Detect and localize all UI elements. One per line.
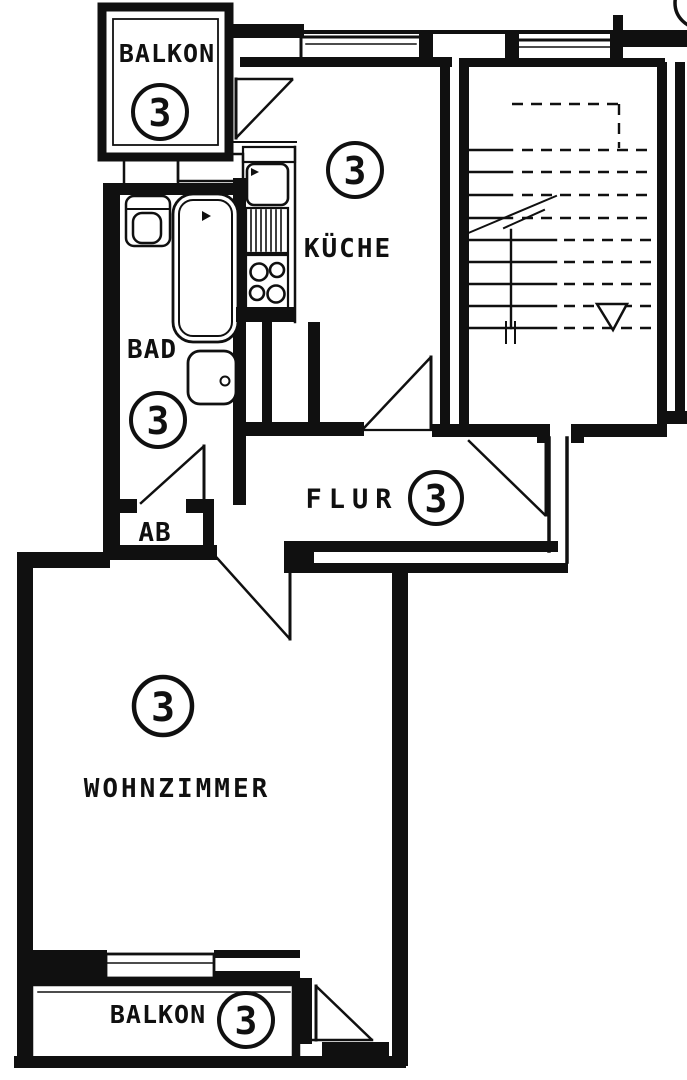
- wall-segment: [14, 1056, 406, 1068]
- window-wohnzimmer: [106, 954, 214, 978]
- wall-segment: [619, 32, 687, 47]
- unit-number: 3: [149, 91, 172, 135]
- room-wohnzimmer: 3 WOHNZIMMER: [17, 552, 408, 1066]
- counter-segment: [243, 147, 295, 162]
- wall-segment: [103, 183, 247, 195]
- exterior-top-wall: [232, 0, 687, 64]
- room-label-flur: FLUR: [305, 484, 398, 515]
- wall-segment: [236, 307, 296, 322]
- room-label-kueche: KÜCHE: [304, 231, 392, 264]
- floor-plan-page: BALKON 3 BAD: [0, 0, 687, 1080]
- door-swing-kitchen-balcony: [233, 79, 296, 142]
- stairs: [466, 104, 654, 343]
- wall-segment: [613, 15, 623, 32]
- unit-number: 3: [425, 477, 448, 521]
- neighbor-unit-circle-cropped: [675, 0, 687, 28]
- wall-segment: [578, 424, 666, 437]
- kitchen-counter: [236, 147, 296, 322]
- wall-segment: [432, 424, 544, 437]
- bathtub: [173, 194, 238, 342]
- kitchen-sink: [247, 164, 288, 205]
- washbasin: [188, 351, 236, 404]
- unit-number: 3: [151, 685, 175, 731]
- wall-segment: [103, 499, 137, 513]
- stair-break-line: [466, 196, 556, 234]
- wall-segment: [459, 62, 469, 437]
- wall-segment: [296, 978, 312, 1044]
- room-kueche: 3 KÜCHE: [236, 57, 452, 436]
- wall-segment: [440, 62, 450, 429]
- floor-plan-drawing: BALKON 3 BAD: [0, 0, 687, 1080]
- wall-segment: [459, 58, 665, 67]
- wall-segment: [17, 950, 107, 980]
- door-swing-bad: [141, 446, 204, 503]
- stair-direction-arrow-down: [597, 304, 627, 330]
- stairwell: [432, 58, 687, 515]
- room-bad: BAD 3: [103, 178, 247, 558]
- wall-segment: [232, 24, 304, 38]
- room-label-ab: AB: [138, 518, 171, 548]
- room-flur: FLUR 3: [284, 438, 568, 573]
- room-label-bad: BAD: [127, 335, 177, 365]
- door-swing-entrance: [469, 440, 546, 515]
- wall-segment: [308, 322, 320, 425]
- wall-segment: [657, 62, 667, 437]
- wall-segment: [675, 62, 685, 422]
- wall-segment: [240, 57, 452, 67]
- room-label-balkon-bottom: BALKON: [110, 1000, 206, 1029]
- room-balkon-bottom: BALKON 3: [14, 978, 406, 1068]
- wall-segment: [322, 1042, 389, 1058]
- wall-segment: [262, 322, 272, 425]
- wall-segment: [663, 411, 687, 424]
- room-label-wohnzimmer: WOHNZIMMER: [84, 774, 271, 804]
- room-balkon-top: BALKON 3: [102, 7, 229, 157]
- worktop-drainer: [246, 208, 288, 253]
- door-swing-kueche: [364, 357, 431, 428]
- unit-number: 3: [235, 999, 258, 1043]
- wall-segment: [298, 563, 568, 573]
- room-label-balkon-top: BALKON: [119, 39, 215, 68]
- wall-segment: [298, 541, 558, 552]
- wall-segment: [236, 422, 364, 436]
- door-swing-neighbor-balcony: [307, 986, 372, 1040]
- door-swing-wohnzimmer: [217, 556, 290, 639]
- wall-segment: [392, 563, 408, 1066]
- unit-number: 3: [344, 149, 367, 193]
- toilet: [126, 196, 170, 246]
- unit-number: 3: [147, 399, 170, 443]
- stove-4-burners: [246, 255, 288, 309]
- wall-segment: [214, 950, 300, 958]
